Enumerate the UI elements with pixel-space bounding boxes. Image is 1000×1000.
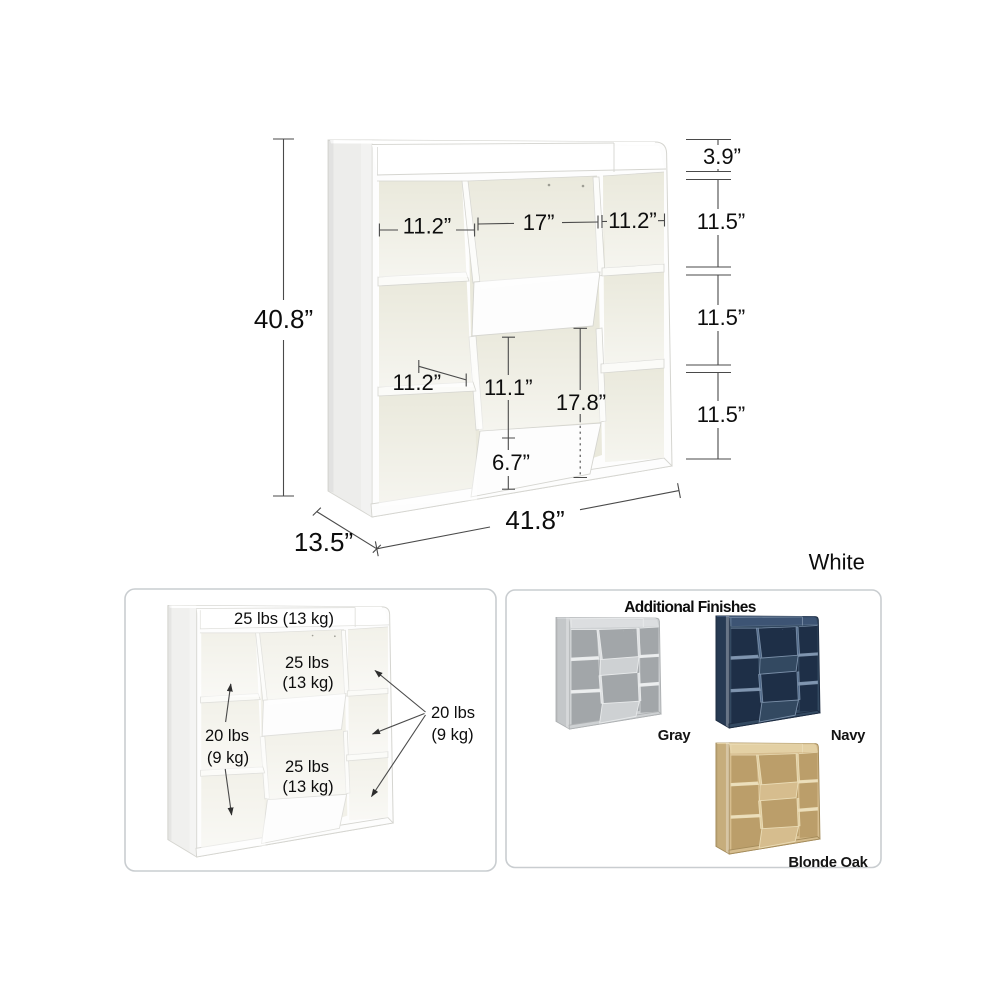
svg-text:(9 kg): (9 kg) (431, 726, 473, 744)
svg-text:13.5”: 13.5” (294, 527, 353, 557)
svg-text:17”: 17” (523, 210, 555, 235)
svg-text:White: White (809, 550, 865, 575)
svg-text:(13 kg): (13 kg) (282, 674, 333, 692)
svg-text:40.8”: 40.8” (254, 304, 313, 334)
svg-text:25 lbs: 25 lbs (285, 758, 329, 776)
svg-text:Additional Finishes: Additional Finishes (624, 599, 756, 616)
svg-text:11.2”: 11.2” (403, 214, 452, 239)
svg-text:(13 kg): (13 kg) (282, 778, 333, 796)
svg-text:11.5”: 11.5” (697, 402, 746, 427)
svg-text:41.8”: 41.8” (505, 505, 564, 535)
svg-text:Blonde Oak: Blonde Oak (788, 855, 868, 871)
svg-text:Gray: Gray (658, 728, 692, 744)
svg-text:11.1”: 11.1” (484, 375, 533, 400)
svg-text:11.5”: 11.5” (697, 305, 746, 330)
svg-text:Navy: Navy (831, 728, 866, 744)
svg-text:6.7”: 6.7” (492, 450, 530, 475)
svg-text:25 lbs (13 kg): 25 lbs (13 kg) (234, 610, 334, 628)
svg-text:3.9”: 3.9” (703, 144, 741, 169)
svg-text:11.2”: 11.2” (393, 370, 442, 395)
svg-text:11.2”: 11.2” (608, 208, 657, 233)
svg-text:11.5”: 11.5” (697, 209, 746, 234)
svg-text:17.8”: 17.8” (556, 390, 606, 415)
svg-text:(9 kg): (9 kg) (207, 749, 249, 767)
svg-text:20 lbs: 20 lbs (431, 704, 475, 722)
svg-text:20 lbs: 20 lbs (205, 727, 249, 745)
svg-text:25 lbs: 25 lbs (285, 654, 329, 672)
